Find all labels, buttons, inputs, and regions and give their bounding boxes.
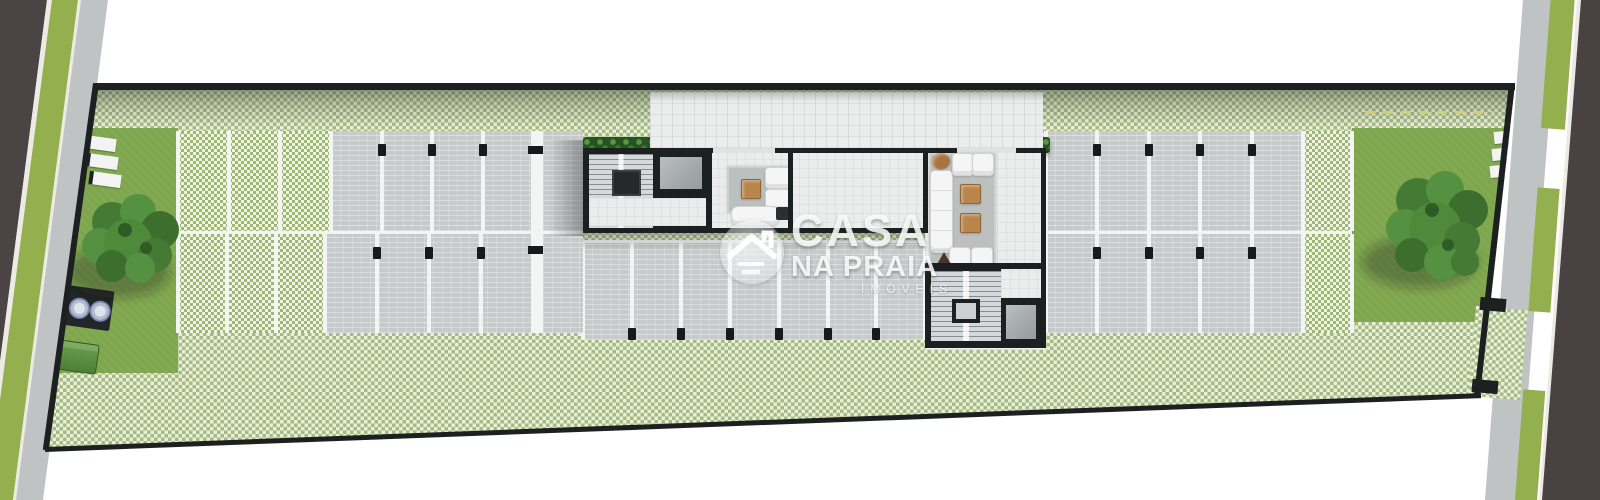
parking-stub-south — [543, 234, 583, 333]
parking-space — [1200, 234, 1251, 333]
structural-column — [477, 247, 485, 259]
parking-space — [331, 131, 382, 231]
stair-landing-a — [612, 170, 641, 196]
structural-column — [528, 246, 544, 254]
parking-line — [728, 243, 732, 340]
parking-section-center-paved — [583, 243, 925, 340]
lounge-armchair — [972, 153, 994, 176]
parking-space — [178, 234, 227, 333]
stair-landing-b — [952, 299, 980, 323]
parking-section-south-left-paved — [325, 234, 533, 333]
parking-space — [1200, 131, 1251, 231]
parking-line — [225, 234, 229, 333]
lobby-daybed — [731, 206, 779, 226]
structural-column — [528, 146, 544, 154]
lounge-stool — [960, 184, 981, 204]
boundary-wall-north — [95, 83, 1515, 90]
parking-line — [630, 243, 634, 340]
parking-space — [583, 243, 632, 340]
structural-column — [775, 328, 783, 340]
elevator-a — [655, 152, 707, 194]
parking-space — [276, 234, 325, 333]
parking-space — [632, 243, 681, 340]
parking-space — [178, 131, 229, 231]
parking-section-south-right-paved — [1046, 234, 1303, 333]
parking-space — [681, 243, 730, 340]
parking-space — [779, 243, 828, 340]
parking-section-south-left-permeable — [178, 234, 325, 333]
parking-line — [1301, 131, 1305, 231]
parking-section-north-right-paved — [1046, 131, 1303, 231]
structural-column — [428, 144, 436, 156]
parking-space — [1303, 131, 1352, 231]
structural-column — [1093, 247, 1101, 259]
elevator-b — [1001, 300, 1041, 344]
parking-space — [876, 243, 925, 340]
parking-line — [1350, 131, 1354, 231]
parking-space — [227, 234, 276, 333]
parking-space — [1149, 234, 1200, 333]
structural-column — [628, 328, 636, 340]
parking-space — [483, 131, 534, 231]
parking-space — [1097, 131, 1148, 231]
row-divider-line — [1046, 231, 1352, 234]
parking-space — [1046, 131, 1097, 231]
parking-space — [432, 131, 483, 231]
parking-space — [1046, 234, 1097, 333]
structural-column — [1196, 247, 1204, 259]
parking-line — [274, 234, 278, 333]
structural-column — [872, 328, 880, 340]
parking-space — [828, 243, 877, 340]
entrance-door-glass — [713, 148, 775, 153]
yellow-dashed-marking — [1365, 111, 1493, 114]
parking-space — [377, 234, 429, 333]
parking-section-north-right-permeable — [1303, 131, 1352, 231]
structural-column — [1248, 247, 1256, 259]
parking-section-south-right-permeable — [1303, 234, 1352, 333]
lounge-stool — [960, 213, 981, 233]
lounge-round-table — [932, 153, 950, 169]
structural-column — [726, 328, 734, 340]
core-b-floor — [1001, 269, 1041, 298]
parking-line — [1301, 234, 1305, 333]
parking-space — [382, 131, 433, 231]
parking-line — [176, 131, 180, 231]
hall-east-wall — [923, 152, 928, 228]
structural-column — [824, 328, 832, 340]
core-a-lobby-floor — [589, 198, 706, 226]
site-ground — [0, 0, 1600, 500]
walkway-wall-shadow — [650, 92, 1043, 102]
parking-space — [1149, 131, 1200, 231]
site-plan-canvas: CASA NA PRAIA IMÓVEIS — [0, 0, 1600, 500]
parking-line — [278, 131, 282, 231]
structural-column — [425, 247, 433, 259]
parking-space — [481, 234, 533, 333]
parking-space — [429, 234, 481, 333]
structural-column — [378, 144, 386, 156]
row-divider-line — [178, 231, 583, 234]
parking-section-north-left-permeable — [178, 131, 331, 231]
structural-column — [1145, 144, 1153, 156]
hall-west-wall — [788, 152, 793, 228]
parking-space — [1097, 234, 1148, 333]
parking-section-north-left-paved — [331, 131, 533, 231]
parking-space — [229, 131, 280, 231]
structural-column — [479, 144, 487, 156]
parking-space — [730, 243, 779, 340]
lobby-table — [741, 179, 761, 199]
gas-meter-tank — [68, 296, 92, 320]
parking-line — [679, 243, 683, 340]
structural-column — [1093, 144, 1101, 156]
parking-line — [1350, 234, 1354, 333]
structural-column — [1145, 247, 1153, 259]
parking-space — [325, 234, 377, 333]
parking-line — [227, 131, 231, 231]
parking-line — [176, 234, 180, 333]
lounge-sofa — [930, 170, 953, 253]
gas-meter-tank — [88, 299, 112, 323]
parking-line — [874, 243, 878, 340]
parking-space — [1252, 131, 1303, 231]
structural-column — [1196, 144, 1204, 156]
structural-column — [677, 328, 685, 340]
lounge-armchair — [952, 153, 974, 176]
structural-column — [373, 247, 381, 259]
structural-column — [1248, 144, 1256, 156]
parking-line — [323, 234, 327, 333]
parking-space — [280, 131, 331, 231]
parking-line — [777, 243, 781, 340]
parking-space — [1252, 234, 1303, 333]
building-shadow-south — [583, 233, 928, 251]
parking-space — [1303, 234, 1352, 333]
building-shadow-west — [549, 140, 583, 236]
parking-line — [329, 131, 333, 231]
parking-line — [826, 243, 830, 340]
